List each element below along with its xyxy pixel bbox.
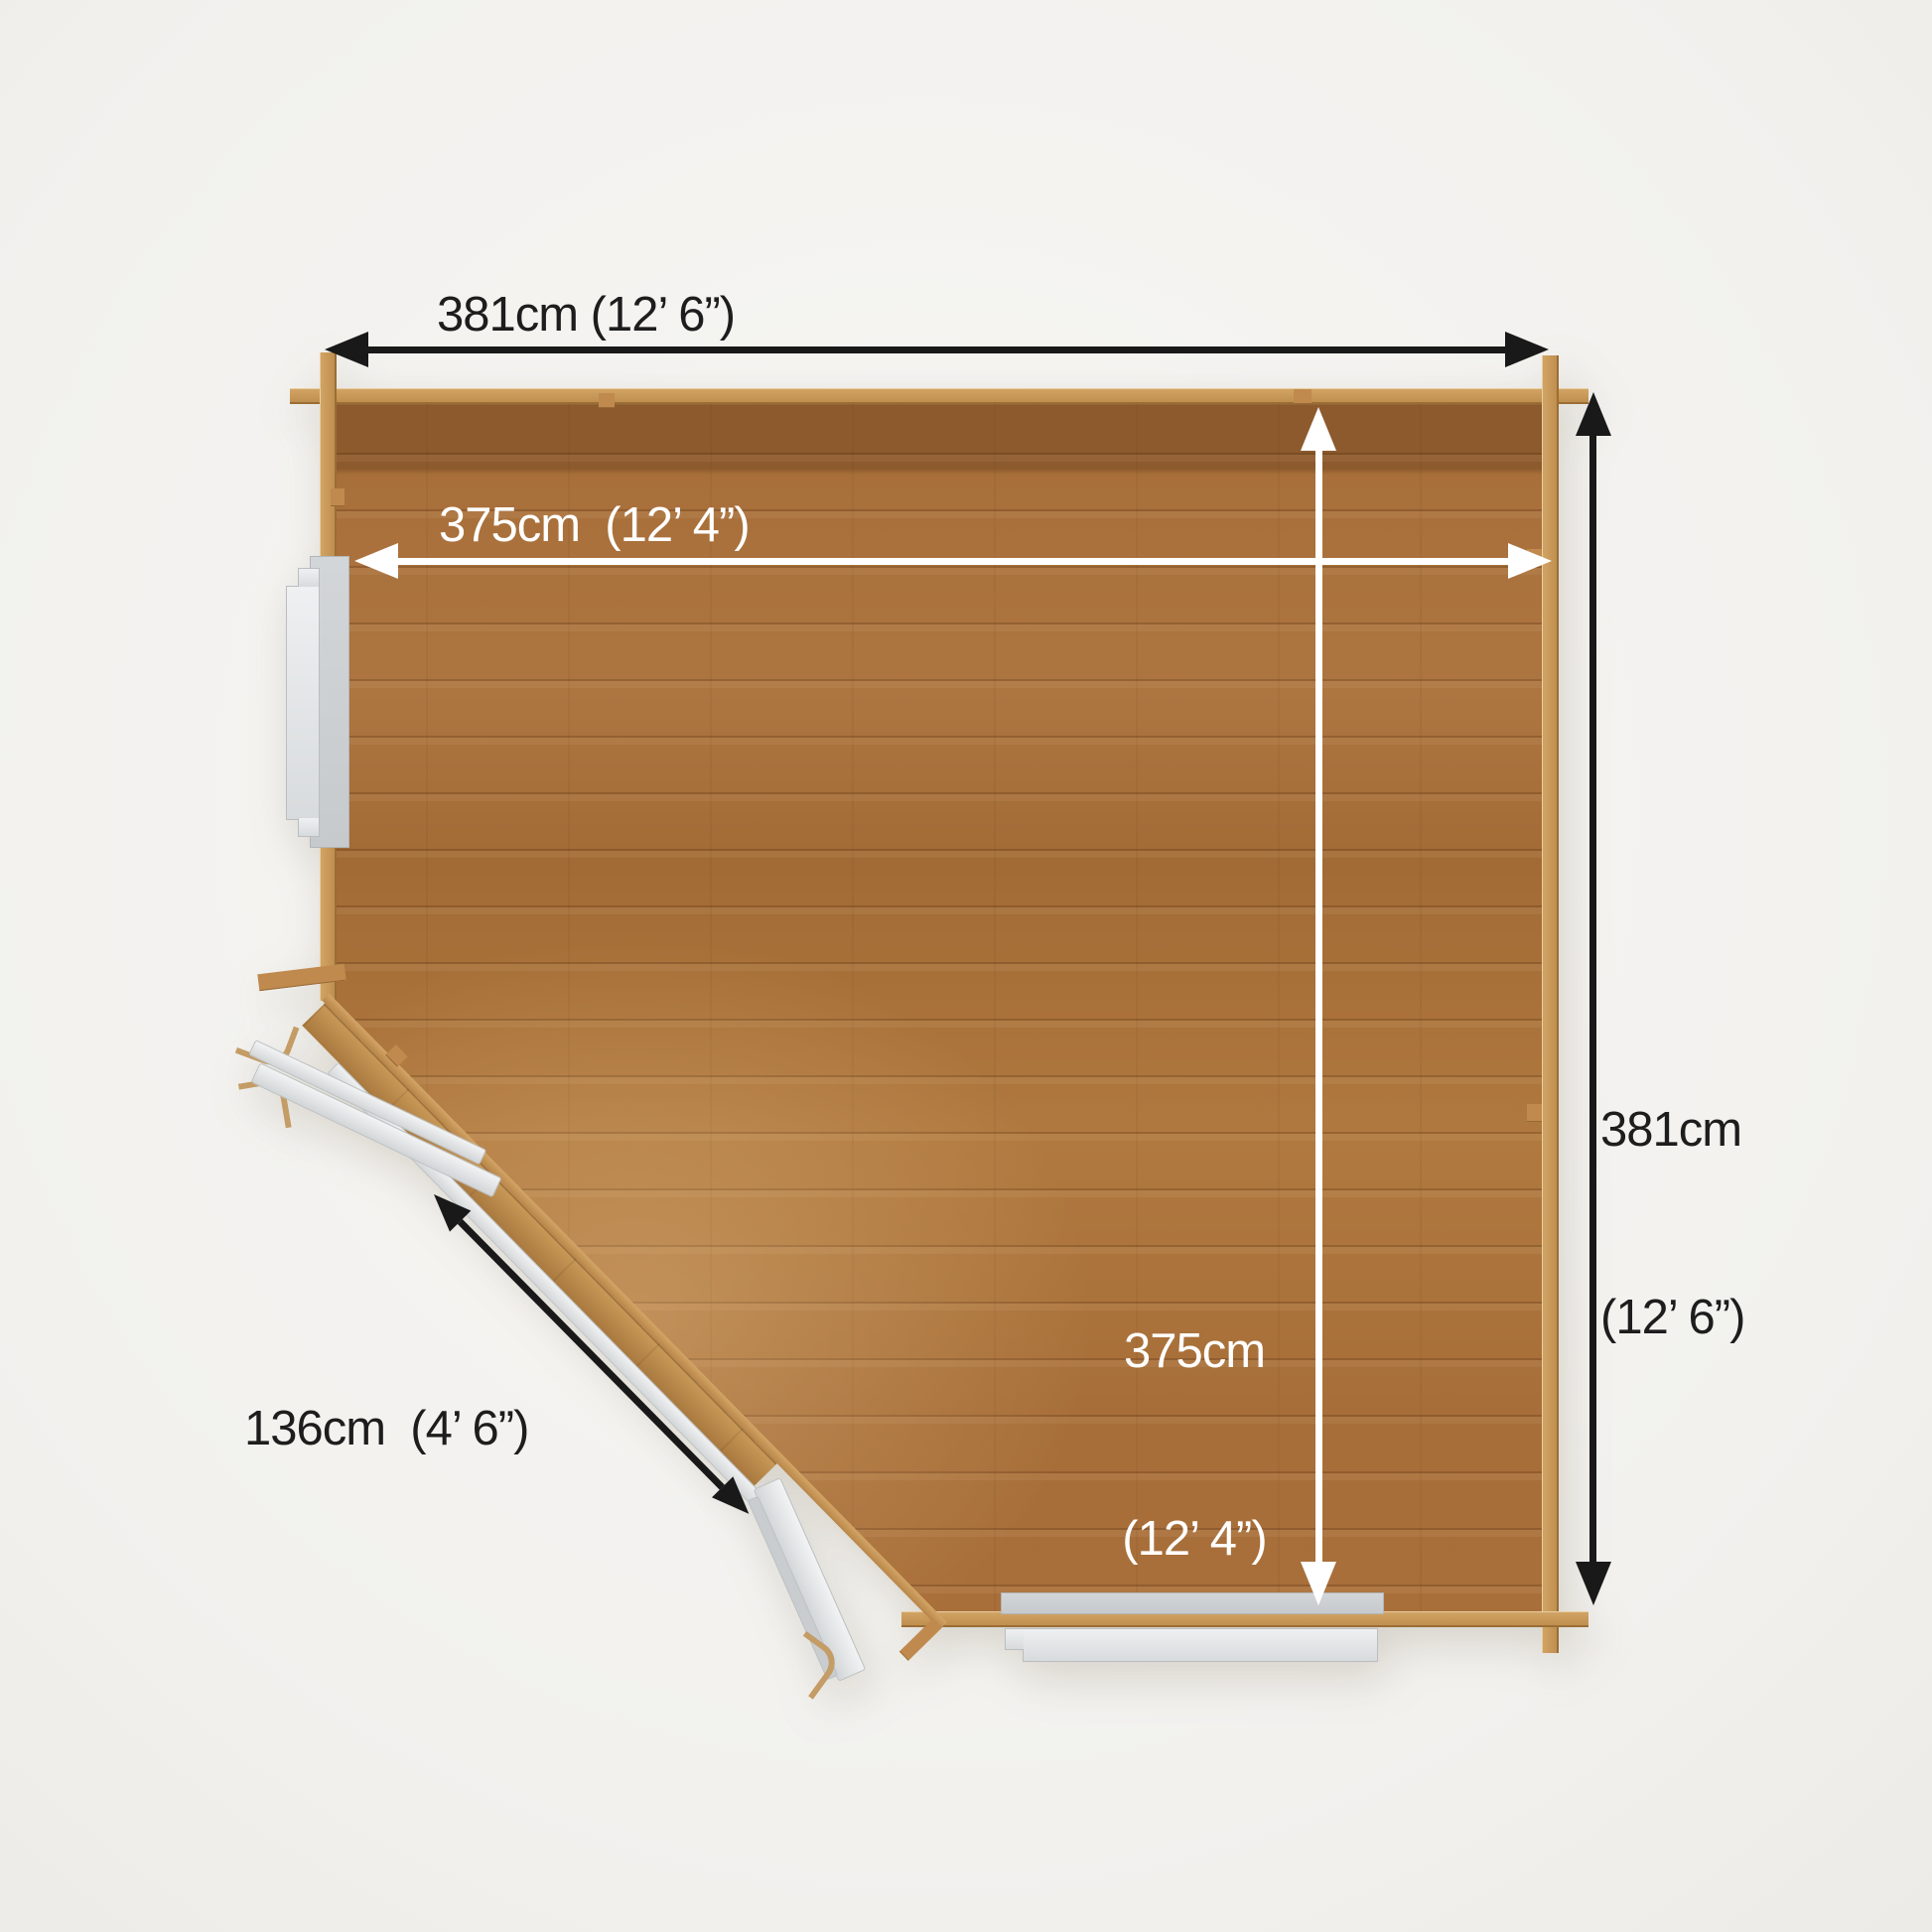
floor-plan-diagram: 381cm (12’ 6”) 375cm (12’ 4”) 381cm (12’… bbox=[0, 0, 1932, 1932]
arrowhead-down bbox=[1576, 1562, 1611, 1605]
arrowhead-down bbox=[1301, 1562, 1336, 1605]
left-window-step bbox=[298, 568, 320, 587]
external-width-label: 381cm (12’ 6”) bbox=[437, 284, 735, 346]
top-wall-log bbox=[290, 388, 1588, 404]
internal-depth-label: 375cm (12’ 4”) bbox=[1100, 1196, 1289, 1695]
log-joint-tab bbox=[1294, 389, 1311, 404]
left-window-step bbox=[298, 818, 320, 837]
arrowhead-up bbox=[1301, 407, 1336, 451]
corner-door-width-label: 136cm (4’ 6”) bbox=[244, 1398, 528, 1460]
external-depth-label: 381cm (12’ 6”) bbox=[1600, 975, 1744, 1473]
arrowhead-right bbox=[1505, 332, 1549, 367]
bottom-window-step bbox=[1005, 1628, 1024, 1650]
log-joint-tab bbox=[331, 488, 345, 506]
arrowhead-left bbox=[354, 543, 398, 579]
arrowhead-right bbox=[1508, 543, 1552, 579]
arrowhead-up bbox=[1576, 392, 1611, 436]
log-joint-tab bbox=[599, 393, 615, 408]
log-joint-tab bbox=[1527, 1104, 1542, 1122]
internal-width-label: 375cm (12’ 4”) bbox=[439, 494, 750, 557]
cabin-plan bbox=[0, 0, 1932, 1932]
cabin-floor bbox=[0, 0, 1932, 1932]
arrowhead-left bbox=[325, 332, 368, 367]
left-window-pane bbox=[286, 586, 320, 820]
